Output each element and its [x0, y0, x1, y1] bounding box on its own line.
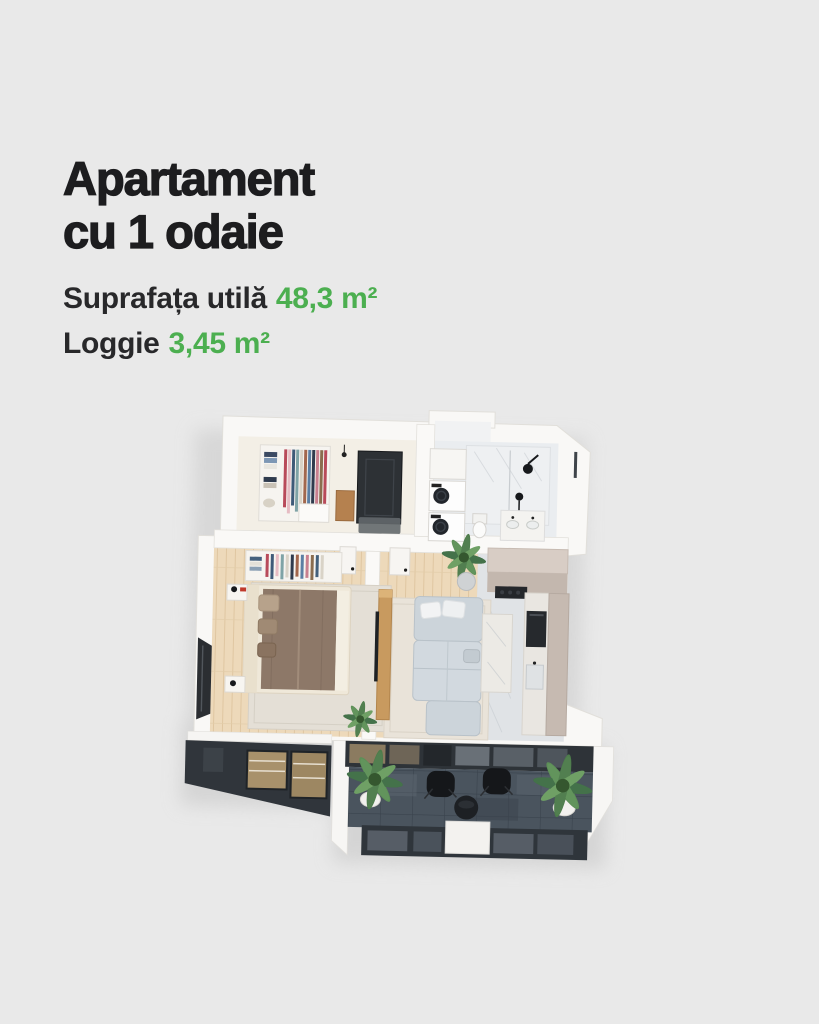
- floorplan-render: [0, 0, 819, 1024]
- bed-foot-frame: [335, 591, 349, 691]
- flyer-canvas: Apartament cu 1 odaie Suprafața utilă48,…: [0, 0, 819, 1024]
- living-plant-pot: [457, 572, 475, 590]
- loggia: [331, 741, 614, 861]
- right-wall-window-slit: [574, 452, 578, 478]
- nightstand-bottom: [225, 676, 245, 692]
- niche-floor: [434, 421, 490, 444]
- loggia-facade-pillar: [445, 821, 490, 854]
- oven: [526, 611, 547, 647]
- kitchen-upper-cabinets: [488, 548, 569, 574]
- doormat: [358, 517, 400, 534]
- pillow: [258, 643, 276, 657]
- facade-window-1: [247, 751, 288, 790]
- bed: [243, 584, 351, 694]
- bedroom-window: [196, 637, 212, 719]
- facade-window-small: [203, 748, 224, 772]
- laundry-cabinet: [430, 449, 467, 480]
- facade-window-2: [290, 752, 327, 799]
- sink: [526, 665, 544, 689]
- sofa-pillow: [442, 600, 466, 619]
- toilet: [472, 514, 487, 538]
- living-door: [389, 548, 410, 575]
- pillow: [259, 595, 279, 611]
- sofa-pillow: [464, 649, 480, 662]
- nightstand-top: [227, 584, 247, 600]
- hall-drawer-unit: [299, 504, 329, 523]
- kitchen-cabinet-run: [546, 593, 569, 735]
- marble-island: [481, 614, 513, 693]
- floorplan-group: [179, 405, 621, 869]
- sofa-pillow: [420, 602, 442, 619]
- washer-dryer-stack: [428, 481, 465, 542]
- vanity: [500, 510, 545, 541]
- pillow: [258, 619, 277, 634]
- entrance-door: [357, 451, 403, 524]
- hall-wood-cabinet: [336, 491, 355, 521]
